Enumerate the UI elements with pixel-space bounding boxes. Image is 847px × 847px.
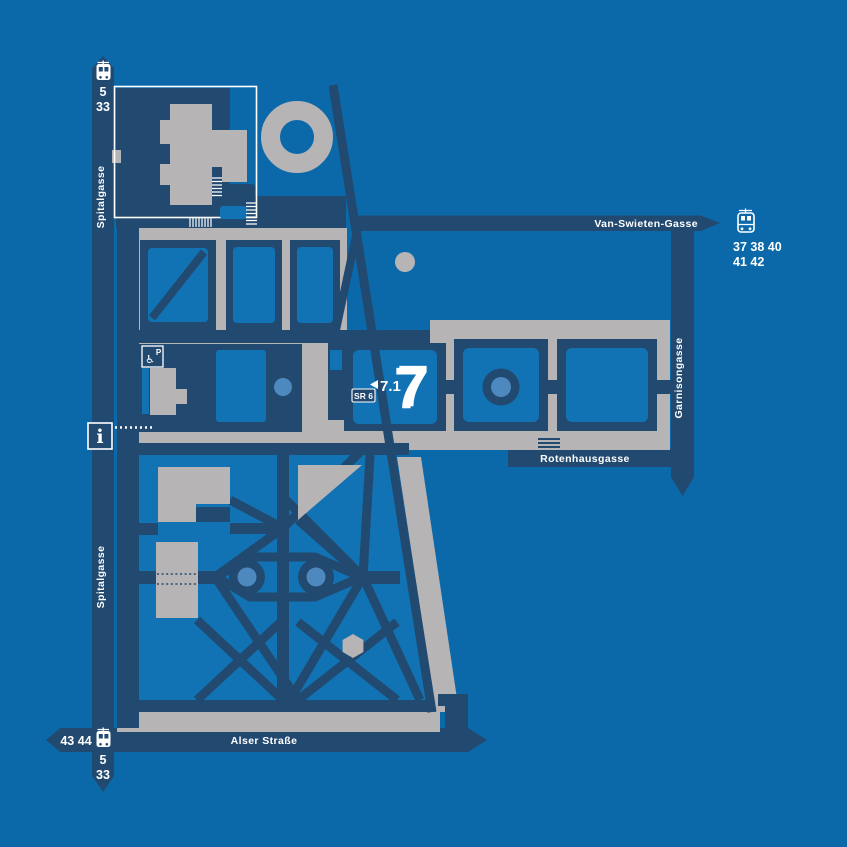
tree-circle-center — [307, 568, 326, 587]
accessible-parking[interactable]: ♿ P — [142, 346, 163, 367]
room-sr6-badge[interactable]: SR 6 — [352, 389, 375, 402]
tram-wheel — [106, 743, 109, 746]
tram-wheel — [99, 743, 102, 746]
tram-window — [747, 216, 751, 221]
planter-block — [220, 206, 247, 219]
central-cross-path — [117, 330, 430, 343]
tram-icon — [97, 64, 111, 80]
spitalgasse-label-bottom: Spitalgasse — [95, 546, 107, 609]
tram-lines-top-2: 33 — [96, 100, 110, 114]
tram-lines-bottom-2: 33 — [96, 768, 110, 782]
tram-lines-bottom-1: 5 — [100, 753, 107, 767]
tram-lines-top-1: 5 — [100, 85, 107, 99]
courtyard-green — [233, 247, 275, 323]
wheelchair-icon: ♿ — [145, 354, 155, 366]
tram-window — [104, 734, 108, 739]
tram-window — [99, 734, 103, 739]
courtyard-number: 7 — [397, 354, 429, 419]
campus-map: i ♿ P 7 7 7.1 SR 6 Spitalgasse Spitalgas… — [0, 0, 847, 847]
parking-letter: P — [156, 348, 162, 357]
courtyard-green — [216, 350, 266, 422]
tree-circle-center — [491, 377, 511, 397]
tram-window — [104, 67, 108, 72]
garden-top-path — [117, 443, 409, 455]
map-canvas: i ♿ P 7 7 7.1 SR 6 Spitalgasse Spitalgas… — [0, 0, 847, 847]
courtyard-green — [566, 348, 648, 422]
tram-window — [741, 216, 745, 221]
rotenhausgasse-label: Rotenhausgasse — [540, 453, 630, 465]
garnisongasse-label: Garnisongasse — [673, 337, 685, 418]
small-pavilion-dot — [395, 252, 415, 272]
courtyard-green — [142, 368, 149, 414]
courtyard-connector — [446, 380, 454, 394]
entrance-label: 7.1 — [380, 378, 401, 395]
garden-path — [117, 523, 158, 535]
fountain-circle — [274, 378, 292, 396]
alser-strasse-label: Alser Straße — [231, 735, 298, 747]
info-icon-letter: i — [96, 426, 103, 448]
upper-courtyards — [140, 240, 340, 330]
info-point[interactable]: i — [88, 423, 112, 449]
tram-lines-van-swieten-2: 41 42 — [733, 255, 764, 269]
courtyard-green — [297, 247, 333, 323]
south-walkway — [117, 712, 440, 732]
tree-circle-center — [238, 568, 257, 587]
tram-lines-van-swieten-1: 37 38 40 — [733, 240, 782, 254]
tram-wheel — [749, 227, 752, 230]
garden-building-rect — [156, 542, 198, 618]
courtyard-connector — [548, 380, 557, 394]
tram-icon — [97, 731, 111, 747]
spitalgasse-label-top: Spitalgasse — [95, 166, 107, 229]
tram-lines-alser-left: 43 44 — [60, 734, 91, 748]
gate-building — [112, 150, 121, 163]
courtyard-green — [330, 350, 342, 370]
courtyard-connector — [657, 380, 671, 394]
garden-building-annex — [196, 507, 230, 522]
stairs-icon — [246, 203, 257, 224]
tram-wheel — [106, 76, 109, 79]
west-walkway — [117, 228, 139, 728]
kiosk-block — [229, 184, 255, 197]
tram-wheel — [741, 227, 744, 230]
van-swieten-gasse-label: Van-Swieten-Gasse — [594, 218, 698, 230]
tram-wheel — [99, 76, 102, 79]
tram-window — [99, 67, 103, 72]
room-badge-label: SR 6 — [354, 391, 373, 401]
